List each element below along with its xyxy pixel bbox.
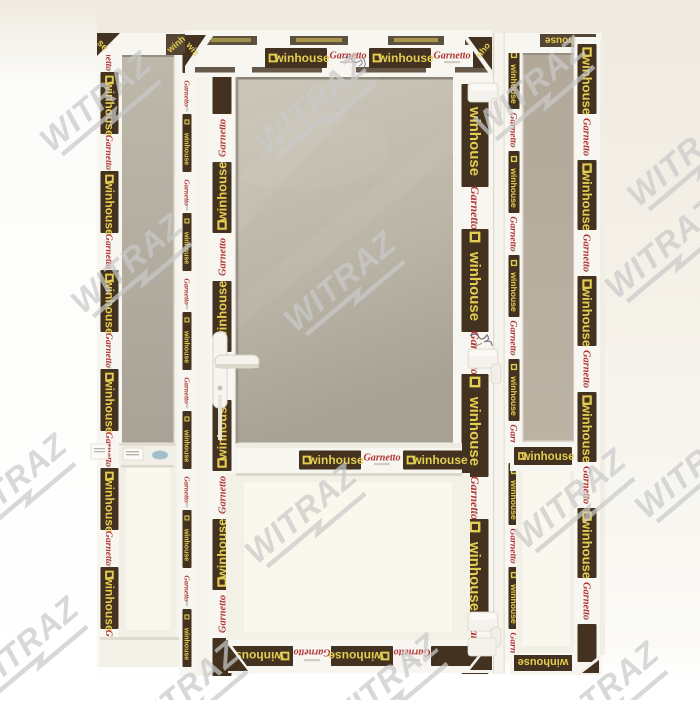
svg-text:winhouse: winhouse [509, 375, 519, 416]
svg-text:winhouse: winhouse [509, 167, 519, 208]
svg-text:winhouse: winhouse [377, 51, 434, 65]
svg-text:Garnetto: Garnetto [182, 476, 190, 503]
svg-text:Garnetto: Garnetto [103, 333, 114, 368]
svg-text:winhouse: winhouse [102, 476, 116, 533]
svg-text:winhouse: winhouse [183, 429, 190, 462]
svg-text:Garnetto: Garnetto [182, 278, 190, 305]
svg-text:Garnetto: Garnetto [293, 646, 330, 657]
svg-text:Garnetto: Garnetto [433, 51, 470, 62]
svg-text:winhouse: winhouse [411, 453, 468, 467]
svg-text:winhouse: winhouse [579, 286, 594, 347]
svg-text:Garnetto: Garnetto [103, 135, 114, 170]
svg-text:Garnetto: Garnetto [182, 575, 190, 602]
svg-text:winhouse: winhouse [466, 396, 483, 466]
svg-text:winhouse: winhouse [183, 627, 190, 660]
svg-text:winhouse: winhouse [579, 518, 594, 579]
svg-text:winhouse: winhouse [215, 400, 230, 461]
svg-text:winhouse: winhouse [102, 377, 116, 434]
svg-text:winhouse: winhouse [183, 330, 190, 363]
svg-text:winhouse: winhouse [579, 170, 594, 231]
svg-text:Garnetto: Garnetto [182, 80, 190, 107]
svg-text:winhouse: winhouse [509, 271, 519, 312]
svg-text:Garnetto: Garnetto [363, 453, 400, 464]
svg-text:winhouse: winhouse [328, 649, 385, 663]
svg-text:Garnetto: Garnetto [508, 320, 519, 355]
svg-text:Garnetto: Garnetto [508, 216, 519, 251]
svg-text:Garnetto: Garnetto [182, 179, 190, 206]
svg-text:winhouse: winhouse [102, 179, 116, 236]
svg-text:winhouse: winhouse [466, 251, 483, 321]
svg-text:winhouse: winhouse [520, 451, 574, 463]
svg-text:winhouse: winhouse [183, 528, 190, 561]
svg-text:winhouse: winhouse [183, 132, 190, 165]
svg-text:winhouse: winhouse [518, 656, 570, 668]
svg-text:Garnetto: Garnetto [103, 531, 114, 566]
svg-text:winhouse: winhouse [273, 51, 330, 65]
svg-text:Garnetto: Garnetto [182, 377, 190, 404]
svg-text:winhouse: winhouse [102, 575, 116, 632]
